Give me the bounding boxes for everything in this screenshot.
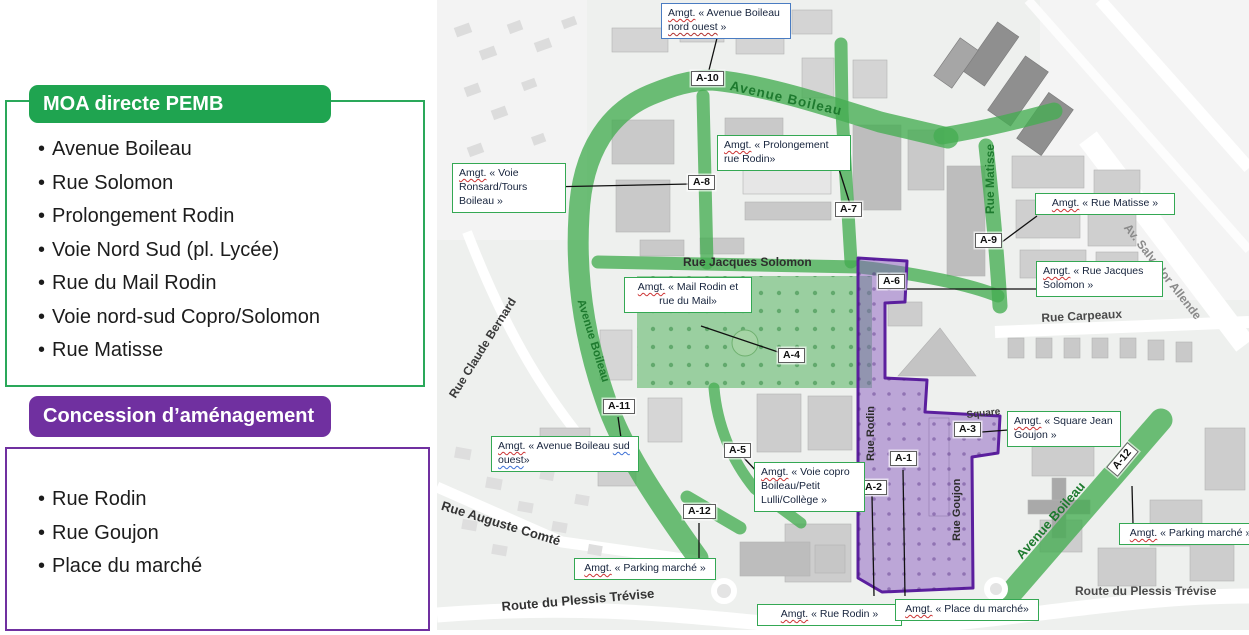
legend-item: Voie nord-sud Copro/Solomon — [38, 301, 320, 335]
legend-item: Place du marché — [38, 550, 202, 584]
annotation-rue-jacques-solomon: Amgt. « Rue Jacques Solomon » — [1036, 261, 1163, 297]
annotation-voie-copro: Amgt. « Voie copro Boileau/Petit Lulli/C… — [754, 462, 865, 512]
marker-a5: A-5 — [724, 443, 751, 458]
legend-concession-title: Concession d’aménagement — [29, 396, 331, 437]
legend-item: Voie Nord Sud (pl. Lycée) — [38, 234, 320, 268]
annotation-voie-ronsard-tours-boileau: Amgt. « Voie Ronsard/Tours Boileau » — [452, 163, 566, 213]
annotation-square-jean-goujon: Amgt. « Square Jean Goujon » — [1007, 411, 1121, 447]
annotation-prolongement-rue-rodin: Amgt. « Prolongement rue Rodin» — [717, 135, 851, 171]
annotation-rue-rodin: Amgt. « Rue Rodin » — [757, 604, 902, 626]
legend-item: Rue du Mail Rodin — [38, 267, 320, 301]
marker-a9: A-9 — [975, 233, 1002, 248]
street-label-rue-matisse: Rue Matisse — [983, 144, 997, 214]
annotation-mail-rodin: Amgt. « Mail Rodin et rue du Mail» — [624, 277, 752, 313]
annotation-rue-matisse: Amgt. « Rue Matisse » — [1035, 193, 1175, 215]
legend-item: Avenue Boileau — [38, 133, 320, 167]
street-label-rue-rodin: Rue Rodin — [865, 406, 877, 461]
marker-a6: A-6 — [878, 274, 905, 289]
legend-concession-list: Rue Rodin Rue Goujon Place du marché — [38, 483, 202, 584]
marker-a8: A-8 — [688, 175, 715, 190]
legend-moa-list: Avenue Boileau Rue Solomon Prolongement … — [38, 133, 320, 368]
legend-item: Rue Solomon — [38, 167, 320, 201]
street-label-rue-jacques-solomon: Rue Jacques Solomon — [683, 255, 812, 269]
marker-a3: A-3 — [954, 422, 981, 437]
annotation-avenue-boileau-sud-ouest: Amgt. « Avenue Boileau sud ouest» — [491, 436, 639, 472]
marker-a7: A-7 — [835, 202, 862, 217]
street-label-route-plessis-right: Route du Plessis Trévise — [1075, 584, 1216, 598]
street-label-rue-goujon: Rue Goujon — [951, 479, 963, 541]
marker-a1: A-1 — [890, 451, 917, 466]
annotation-parking-marche-west: Amgt. « Parking marché » — [574, 558, 716, 580]
marker-a4: A-4 — [778, 348, 805, 363]
legend-item: Rue Rodin — [38, 483, 202, 517]
marker-a10: A-10 — [691, 71, 724, 86]
annotation-parking-marche-east: Amgt. « Parking marché » — [1119, 523, 1249, 545]
legend-item: Prolongement Rodin — [38, 200, 320, 234]
annotation-place-du-marche: Amgt. « Place du marché» — [895, 599, 1039, 621]
legend-moa-title: MOA directe PEMB — [29, 85, 331, 123]
annotation-avenue-boileau-nord-ouest: Amgt. « Avenue Boileau nord ouest » — [661, 3, 791, 39]
marker-a12-west: A-12 — [683, 504, 716, 519]
legend-item: Rue Goujon — [38, 517, 202, 551]
legend-item: Rue Matisse — [38, 334, 320, 368]
marker-a11: A-11 — [603, 399, 635, 414]
